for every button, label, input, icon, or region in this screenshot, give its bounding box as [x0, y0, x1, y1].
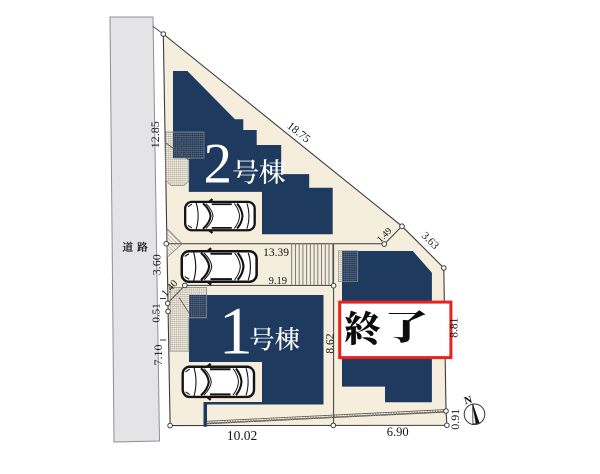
svg-text:0.51: 0.51 — [150, 303, 162, 322]
svg-text:10.02: 10.02 — [227, 428, 257, 443]
svg-text:12.85: 12.85 — [148, 121, 162, 148]
svg-text:0.91: 0.91 — [448, 409, 462, 430]
svg-text:1: 1 — [219, 293, 253, 369]
svg-text:2: 2 — [204, 132, 233, 195]
svg-text:6.90: 6.90 — [387, 425, 409, 439]
svg-text:8.62: 8.62 — [324, 333, 336, 353]
svg-text:8.81: 8.81 — [449, 317, 461, 337]
svg-text:9.19: 9.19 — [269, 276, 287, 287]
svg-text:13.39: 13.39 — [263, 247, 289, 259]
svg-text:7.10: 7.10 — [151, 345, 165, 366]
svg-text:3.60: 3.60 — [150, 254, 164, 275]
